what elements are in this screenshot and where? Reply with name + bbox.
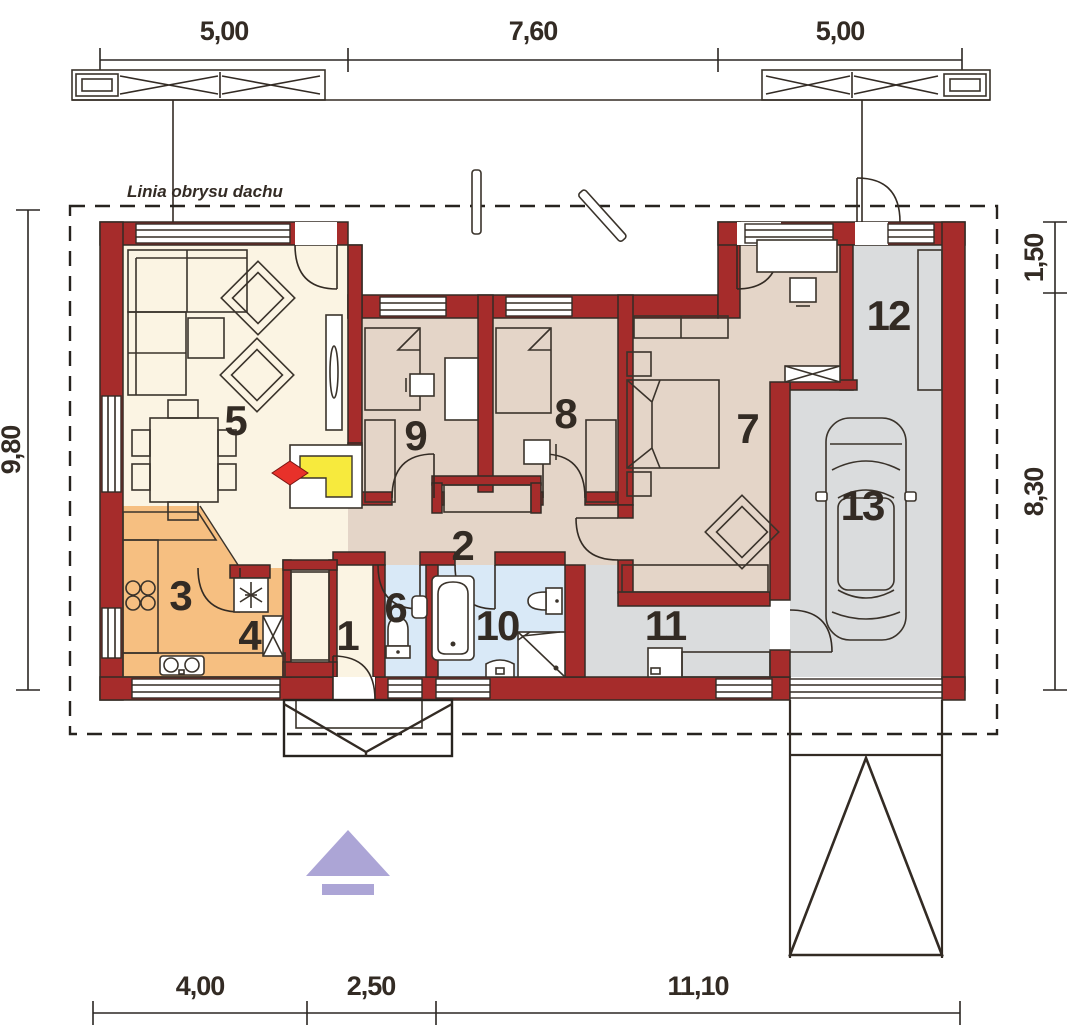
wall-corridor-n4 [585,492,618,505]
room-label-9: 9 [404,412,426,459]
dim-top-3: 5,00 [816,16,865,46]
garage-door-bottom [790,679,942,698]
window-bedroom8 [506,297,572,316]
floor-plan-canvas: 5,00 7,60 5,00 4,00 2,50 11,10 9,80 1,50… [0,0,1068,1035]
wall-hall-wc [373,565,385,677]
wall-bottom-garage-stub [942,677,965,700]
wall-room7-south [618,592,770,606]
wall-corridor-wardrobe-frame [432,476,541,485]
pc-nook [790,278,816,306]
door-hall12-exterior [857,178,900,222]
room-label-6: 6 [384,584,406,631]
room-label-12: 12 [867,292,910,339]
wall-bedroom8-7 [618,295,633,505]
entrance-porch [284,700,452,756]
wall-bedroom9-8 [478,295,493,492]
washbasin-icon [486,660,514,677]
window-utility-bottom [716,679,772,698]
roof-outline-label: Linia obrysu dachu [127,182,283,201]
window-kitchen-bottom [132,679,280,698]
room-label-13: 13 [841,482,884,529]
dim-left-1: 9,80 [0,426,26,475]
room-label-8: 8 [554,390,577,437]
entrance-arrow-icon [306,830,390,895]
room-label-1: 1 [336,612,359,659]
window-bedroom9 [380,297,446,316]
dim-top-1: 5,00 [200,16,249,46]
eave-structure-right [762,70,990,100]
window-bath-bottom [436,679,490,698]
driveway [790,700,942,958]
wall-room7-hall12 [840,245,853,390]
dimension-top: 5,00 7,60 5,00 [100,16,962,72]
wall-garage-west-lower [770,650,790,677]
room-label-5: 5 [224,397,247,444]
basin-6-icon [412,596,427,618]
wall-right [942,222,965,690]
shower-icon [518,632,565,677]
window-living-left [102,396,121,492]
room-label-4: 4 [238,612,262,659]
wall-bath-utility [565,565,585,677]
wall-living-bedroom9 [348,245,362,445]
desk-9 [445,358,478,420]
wall-corridor-wardrobe-r [531,483,541,513]
dim-right-2: 8,30 [1019,468,1049,517]
floor-garage-13 [790,382,942,677]
dimension-bottom: 4,00 2,50 11,10 [93,971,960,1025]
room-label-10: 10 [476,602,519,649]
room-label-7: 7 [736,405,758,452]
floor-plan: 5,00 7,60 5,00 4,00 2,50 11,10 9,80 1,50… [0,0,1068,1035]
dim-bottom-3: 11,10 [667,971,728,1001]
eave-structure-left [72,70,325,100]
dimension-right: 1,50 8,30 [1019,222,1067,690]
floor-room7-south [618,565,770,595]
desk-nook [757,240,837,272]
room-label-11: 11 [645,602,687,649]
window-kitchen-left [102,608,121,658]
room-label-3: 3 [169,572,191,619]
wall-corridor-s2 [420,552,455,565]
cabinet-nook [785,366,840,382]
wall-wardrobe-top [283,560,337,570]
wall-garage-west-upper [770,382,790,600]
bathtub-icon [432,576,474,660]
dim-right-1: 1,50 [1019,234,1049,283]
pantry-cabinet [263,616,283,656]
sink-icon [160,656,204,675]
window-living-top [136,224,290,243]
tv-cabinet [326,315,342,430]
fridge-icon [234,578,268,612]
wall-corridor-s3 [495,552,565,565]
wall-corridor-s1 [333,552,385,565]
dim-top-2: 7,60 [509,16,558,46]
wall-room7-w1 [618,505,633,518]
window-wc-bottom [388,679,422,698]
washer-icon [648,648,682,677]
dim-bottom-1: 4,00 [176,971,225,1001]
window-hall12-top [888,224,934,243]
room-label-2: 2 [451,522,473,569]
dim-bottom-2: 2,50 [347,971,396,1001]
wall-wardrobe-bottom [283,662,337,677]
pc-9 [406,374,434,396]
wall-fridge-stub [230,565,270,578]
dimension-left: 9,80 [0,210,40,690]
